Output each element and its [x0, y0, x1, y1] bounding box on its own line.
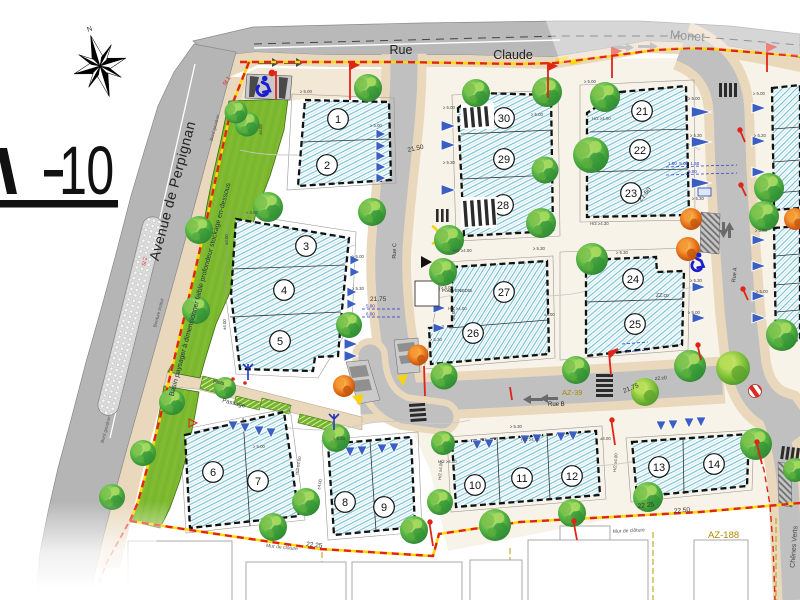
svg-text:14: 14	[708, 459, 720, 471]
svg-text:≥ 5.00: ≥ 5.00	[688, 96, 701, 101]
svg-text:≥ 5.30: ≥ 5.30	[430, 337, 443, 342]
svg-text:≥ 5.00: ≥ 5.00	[755, 228, 768, 233]
svg-text:9: 9	[381, 502, 387, 514]
svg-text:21.75: 21.75	[370, 296, 387, 303]
svg-text:≥ 5.30: ≥ 5.30	[690, 278, 703, 283]
svg-text:23: 23	[625, 188, 637, 200]
svg-text:±4.00: ±4.00	[600, 436, 611, 441]
svg-text:Rue C: Rue C	[392, 243, 399, 259]
svg-text:H/2 ≥4.00: H/2 ≥4.00	[592, 116, 611, 121]
svg-text:6.00: 6.00	[688, 169, 697, 174]
svg-text:H/2 ≥4.00: H/2 ≥4.00	[438, 459, 457, 464]
svg-text:≥ 5.00: ≥ 5.00	[300, 89, 313, 94]
svg-text:≥ 5.00: ≥ 5.00	[756, 289, 769, 294]
svg-text:≥ 5.00: ≥ 5.00	[531, 112, 544, 117]
svg-text:≥ 5.30: ≥ 5.30	[616, 250, 629, 255]
svg-text:21: 21	[636, 106, 648, 118]
svg-text:±4.00: ±4.00	[544, 312, 555, 317]
svg-text:12: 12	[566, 471, 578, 483]
svg-text:≥ 5.30: ≥ 5.30	[352, 286, 365, 291]
svg-text:6: 6	[210, 467, 216, 479]
svg-text:Rue B: Rue B	[548, 402, 565, 408]
svg-text:25: 25	[629, 319, 641, 331]
svg-text:≥ 5.00: ≥ 5.00	[584, 79, 597, 84]
svg-text:2: 2	[324, 160, 330, 172]
svg-text:1.50 5.00 1.50: 1.50 5.00 1.50	[668, 161, 700, 166]
svg-text:±4.00: ±4.00	[258, 124, 263, 135]
svg-text:AZ-188: AZ-188	[708, 530, 739, 541]
svg-text:30: 30	[498, 113, 510, 125]
svg-text:1: 1	[335, 114, 341, 126]
svg-text:H/2 ≥4.00: H/2 ≥4.00	[448, 306, 467, 311]
svg-text:22.50: 22.50	[674, 507, 691, 515]
svg-text:6.00: 6.00	[366, 312, 375, 317]
svg-text:H/2 ≥4.00: H/2 ≥4.00	[453, 248, 472, 253]
svg-text:Claude: Claude	[493, 48, 533, 62]
svg-text:11: 11	[516, 473, 527, 485]
svg-text:13: 13	[653, 462, 665, 474]
svg-text:5.00: 5.00	[366, 304, 375, 309]
svg-text:H/2 ≥4.00: H/2 ≥4.00	[521, 437, 540, 442]
svg-text:8: 8	[342, 497, 348, 509]
svg-text:26: 26	[467, 328, 479, 340]
svg-text:28: 28	[497, 200, 509, 212]
svg-text:≥ 5.30: ≥ 5.30	[692, 196, 705, 201]
svg-text:Rue: Rue	[390, 43, 413, 57]
svg-text:≥ 5.00: ≥ 5.00	[441, 285, 454, 290]
svg-text:≥ 5.30: ≥ 5.30	[690, 133, 703, 138]
svg-text:≥ 5.00: ≥ 5.00	[370, 123, 383, 128]
svg-text:≥ 5.00: ≥ 5.00	[443, 105, 456, 110]
svg-text:≥ 5.00: ≥ 5.00	[688, 310, 701, 315]
svg-text:Monet: Monet	[669, 28, 705, 44]
svg-text:≥ 5.20: ≥ 5.20	[333, 436, 346, 441]
svg-text:≥ 5.00: ≥ 5.00	[253, 444, 266, 449]
svg-text:24: 24	[627, 274, 639, 286]
svg-text:5: 5	[277, 336, 283, 348]
svg-text:22: 22	[634, 145, 646, 157]
svg-text:4: 4	[281, 285, 287, 297]
svg-text:29: 29	[498, 154, 510, 166]
svg-text:AZ-39: AZ-39	[562, 388, 582, 397]
svg-text:10: 10	[469, 480, 481, 492]
svg-text:3: 3	[303, 241, 309, 253]
svg-text:≥ 5.30: ≥ 5.30	[443, 160, 456, 165]
svg-text:±4.00: ±4.00	[224, 234, 229, 245]
svg-text:≥ 5.00: ≥ 5.00	[352, 254, 365, 259]
svg-text:10: 10	[59, 131, 114, 209]
svg-text:±4.00: ±4.00	[222, 319, 227, 330]
svg-text:≥ 5.20: ≥ 5.20	[754, 133, 767, 138]
svg-text:ZZ.co: ZZ.co	[656, 293, 669, 299]
svg-text:27: 27	[498, 287, 510, 299]
svg-text:≥ 5.30: ≥ 5.30	[533, 246, 546, 251]
svg-text:z2.c0: z2.c0	[655, 375, 668, 382]
svg-text:≈ 4.00: ≈ 4.00	[246, 210, 259, 215]
svg-text:H/3 ≥4.30: H/3 ≥4.30	[590, 221, 609, 226]
svg-text:≥ 5.00: ≥ 5.00	[753, 91, 766, 96]
svg-text:≥ 5.30: ≥ 5.30	[510, 424, 523, 429]
svg-text:7: 7	[255, 476, 261, 488]
